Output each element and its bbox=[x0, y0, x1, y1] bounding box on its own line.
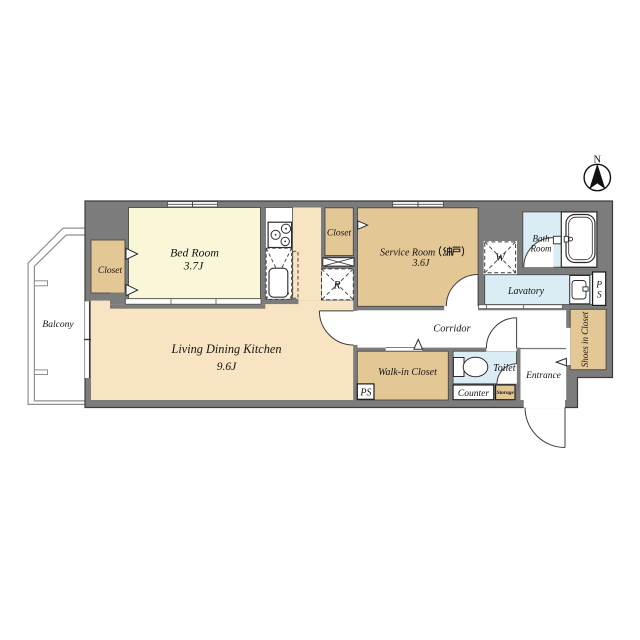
svg-text:Toilet: Toilet bbox=[493, 363, 516, 374]
svg-text:Bed Room: Bed Room bbox=[170, 246, 219, 260]
svg-text:Entrance: Entrance bbox=[525, 371, 561, 381]
svg-text:Shoes in Closet: Shoes in Closet bbox=[580, 311, 590, 367]
svg-text:9.6J: 9.6J bbox=[217, 361, 237, 373]
svg-text:P: P bbox=[595, 281, 602, 291]
svg-text:Counter: Counter bbox=[458, 389, 489, 399]
svg-text:Balcony: Balcony bbox=[42, 320, 74, 330]
svg-text:Closet: Closet bbox=[327, 229, 352, 239]
svg-text:Living Dining Kitchen: Living Dining Kitchen bbox=[171, 342, 282, 356]
svg-text:Lavatory: Lavatory bbox=[507, 286, 545, 297]
svg-text:Bath: Bath bbox=[533, 234, 550, 244]
svg-text:3.6J: 3.6J bbox=[412, 258, 431, 269]
svg-text:Storage: Storage bbox=[497, 390, 515, 396]
svg-text:Room: Room bbox=[530, 244, 552, 254]
svg-text:Walk-in Closet: Walk-in Closet bbox=[378, 367, 437, 378]
svg-text:R: R bbox=[332, 280, 340, 292]
svg-text:PS: PS bbox=[359, 387, 371, 398]
svg-text:3.7J: 3.7J bbox=[183, 261, 204, 273]
svg-text:Closet: Closet bbox=[98, 266, 123, 276]
svg-text:Corridor: Corridor bbox=[433, 324, 471, 335]
svg-text:S: S bbox=[597, 291, 602, 301]
svg-text:W: W bbox=[495, 252, 506, 264]
